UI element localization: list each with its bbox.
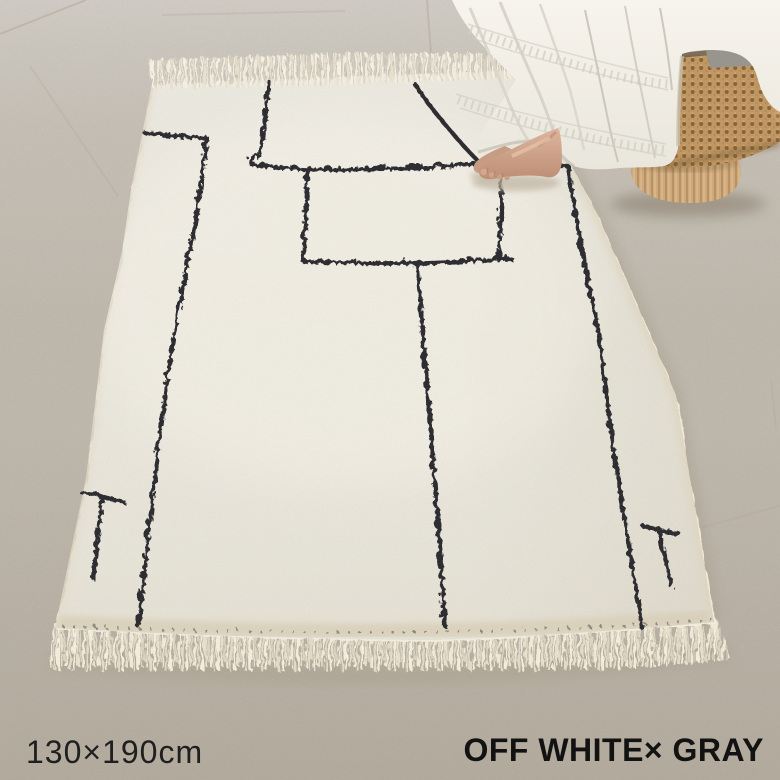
scene-image — [0, 0, 780, 780]
colorway-caption: OFF WHITE× GRAY — [463, 732, 764, 769]
size-caption: 130×190cm — [26, 734, 203, 771]
product-photo-rug-scene: 130×190cm OFF WHITE× GRAY — [0, 0, 780, 780]
